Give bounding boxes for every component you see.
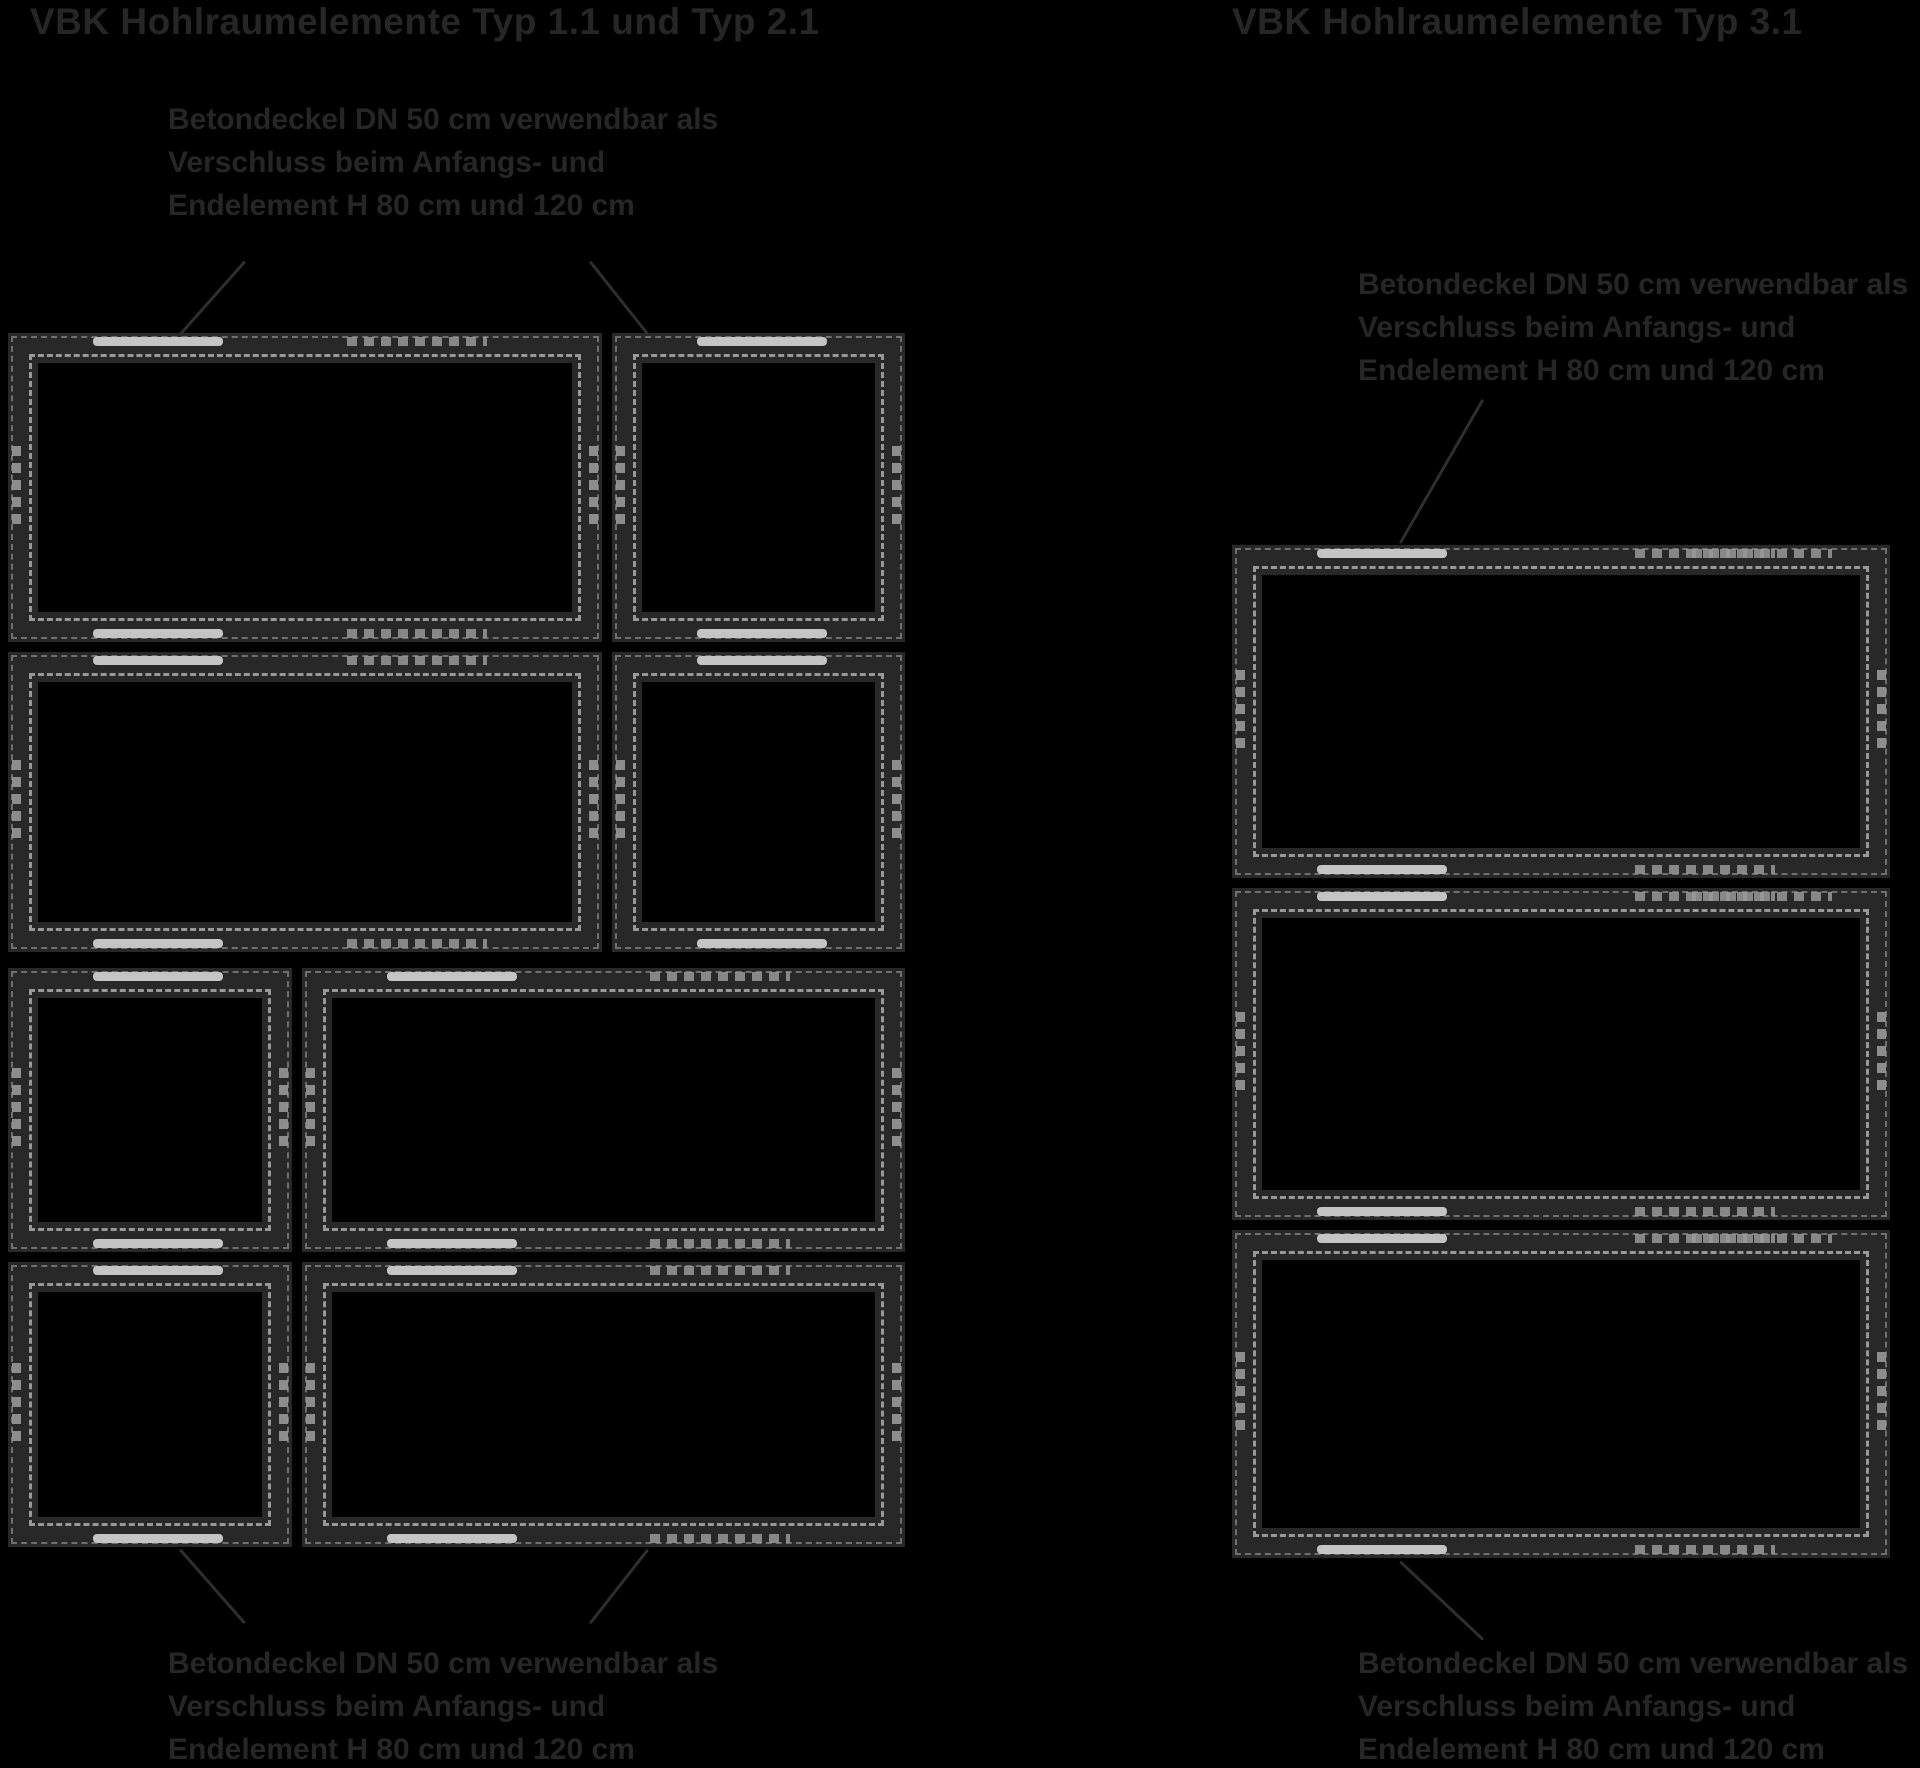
joint-bar-vertical [616, 446, 625, 530]
joint-bar-vertical [892, 446, 901, 530]
element-opening [1262, 1260, 1860, 1528]
opening-edge-dashes [29, 989, 271, 1231]
joint-bar [1317, 549, 1447, 558]
leader-line [589, 1549, 649, 1625]
joint-bar [697, 337, 827, 346]
joint-bar-dashed [1692, 892, 1832, 901]
joint-bar-dashed [347, 337, 487, 346]
joint-bar [93, 939, 223, 948]
concrete-element [612, 652, 905, 952]
joint-bar-dashed [347, 629, 487, 638]
element-opening [332, 1292, 875, 1517]
concrete-element [612, 333, 905, 642]
joint-bar-dashed [1635, 865, 1775, 874]
joint-bar-vertical [892, 1363, 901, 1447]
concrete-element [1232, 1230, 1890, 1558]
joint-bar [1317, 1207, 1447, 1216]
joint-bar [93, 1239, 223, 1248]
leader-line [1399, 1560, 1484, 1640]
joint-bar-dashed [650, 1534, 790, 1543]
concrete-element [302, 968, 905, 1252]
element-opening [642, 363, 875, 612]
opening-edge-dashes [1253, 1251, 1869, 1537]
joint-bar-dashed [1635, 1207, 1775, 1216]
joint-bar-vertical [1236, 1012, 1245, 1096]
concrete-element [8, 1262, 292, 1547]
opening-edge-dashes [633, 354, 884, 621]
opening-edge-dashes [323, 989, 884, 1231]
opening-edge-dashes [29, 1283, 271, 1526]
joint-bar-dashed [347, 656, 487, 665]
opening-edge-dashes [1253, 909, 1869, 1199]
opening-edge-dashes [633, 673, 884, 931]
element-opening [38, 1292, 262, 1517]
diagram-canvas: VBK Hohlraumelemente Typ 1.1 und Typ 2.1… [0, 0, 1920, 1768]
element-opening [38, 682, 572, 922]
joint-bar [697, 656, 827, 665]
opening-edge-dashes [29, 673, 581, 931]
joint-bar-dashed [1692, 549, 1832, 558]
joint-bar-vertical [1877, 670, 1886, 754]
joint-bar-vertical [892, 760, 901, 844]
leader-line [179, 261, 246, 336]
joint-bar [387, 1239, 517, 1248]
joint-bar-vertical [1236, 1352, 1245, 1436]
leader-line [589, 261, 649, 336]
joint-bar [1317, 865, 1447, 874]
joint-bar-dashed [650, 972, 790, 981]
joint-bar-vertical [1877, 1012, 1886, 1096]
joint-bar-vertical [892, 1068, 901, 1152]
concrete-element [1232, 545, 1890, 878]
element-opening [332, 998, 875, 1222]
concrete-element [8, 652, 602, 952]
joint-bar [387, 972, 517, 981]
joint-bar [697, 939, 827, 948]
joint-bar-vertical [589, 760, 598, 844]
joint-bar-vertical [616, 760, 625, 844]
leader-line [179, 1549, 246, 1625]
joint-bar [93, 629, 223, 638]
opening-edge-dashes [1253, 566, 1869, 857]
concrete-element [8, 333, 602, 642]
joint-bar [1317, 1234, 1447, 1243]
joint-bar-dashed [1692, 1234, 1832, 1243]
assembly-layer [0, 0, 1920, 1768]
joint-bar-dashed [1635, 1545, 1775, 1554]
element-opening [38, 363, 572, 612]
element-opening [38, 998, 262, 1222]
joint-bar [93, 972, 223, 981]
joint-bar-vertical [12, 446, 21, 530]
joint-bar [1317, 892, 1447, 901]
joint-bar-vertical [1877, 1352, 1886, 1436]
joint-bar-vertical [279, 1068, 288, 1152]
element-opening [1262, 575, 1860, 848]
joint-bar [1317, 1545, 1447, 1554]
joint-bar-dashed [650, 1239, 790, 1248]
leader-line [1399, 399, 1485, 544]
joint-bar-vertical [12, 1363, 21, 1447]
joint-bar [93, 337, 223, 346]
concrete-element [1232, 888, 1890, 1220]
element-opening [642, 682, 875, 922]
joint-bar [697, 629, 827, 638]
joint-bar [93, 1534, 223, 1543]
concrete-element [302, 1262, 905, 1547]
joint-bar [387, 1266, 517, 1275]
joint-bar-vertical [589, 446, 598, 530]
element-opening [1262, 918, 1860, 1190]
joint-bar [93, 656, 223, 665]
opening-edge-dashes [29, 354, 581, 621]
joint-bar-vertical [306, 1363, 315, 1447]
joint-bar-vertical [12, 1068, 21, 1152]
joint-bar [93, 1266, 223, 1275]
joint-bar-vertical [1236, 670, 1245, 754]
joint-bar-dashed [650, 1266, 790, 1275]
joint-bar-vertical [279, 1363, 288, 1447]
concrete-element [8, 968, 292, 1252]
joint-bar-vertical [12, 760, 21, 844]
opening-edge-dashes [323, 1283, 884, 1526]
joint-bar-vertical [306, 1068, 315, 1152]
joint-bar-dashed [347, 939, 487, 948]
joint-bar [387, 1534, 517, 1543]
